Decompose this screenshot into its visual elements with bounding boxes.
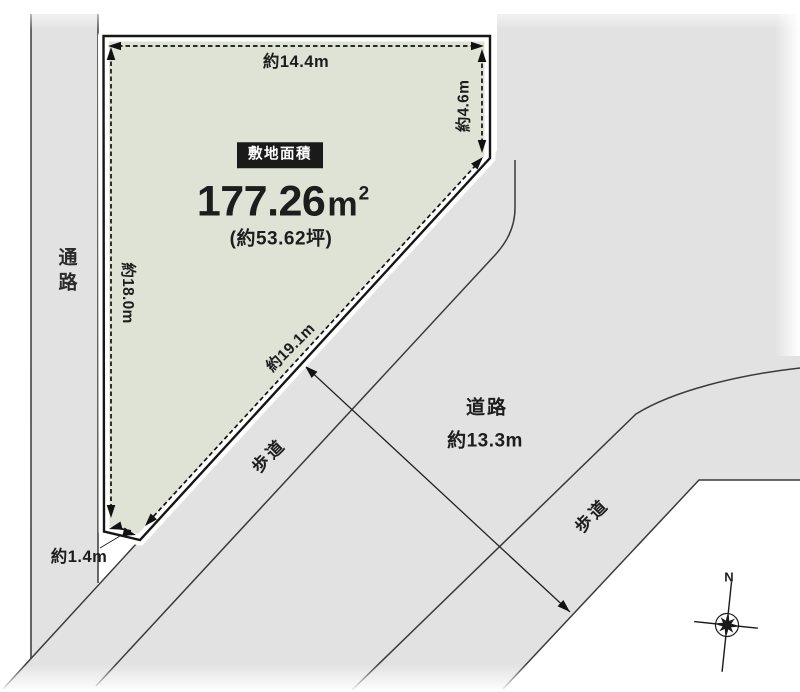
plan-drawing	[0, 0, 800, 692]
area-unit-sup: 2	[359, 185, 370, 204]
site-area-value: 177.26 m 2	[197, 181, 369, 224]
top-fade	[0, 0, 800, 30]
dim-label-bottom: 約1.4m	[51, 549, 108, 566]
road-width-label: 約13.3m	[447, 432, 523, 451]
area-unit: m	[327, 188, 357, 222]
road-label: 道路	[466, 399, 508, 418]
passage-label: 通路	[57, 247, 76, 297]
site-area-badge: 敷地面積	[237, 142, 323, 168]
lot-plan-diagram: 敷地面積 177.26 m 2 (約53.62坪) 約14.4m 約4.6m 約…	[0, 0, 800, 692]
area-number: 177.26	[197, 181, 326, 224]
bottom-fade	[0, 664, 545, 692]
dim-label-right: 約4.6m	[456, 80, 472, 132]
dim-label-left: 約18.0m	[119, 262, 135, 323]
site-area-tsubo: (約53.62坪)	[230, 230, 333, 249]
compass-north-label: N	[724, 571, 733, 584]
dim-label-top: 約14.4m	[263, 54, 329, 71]
right-fade	[775, 0, 800, 356]
